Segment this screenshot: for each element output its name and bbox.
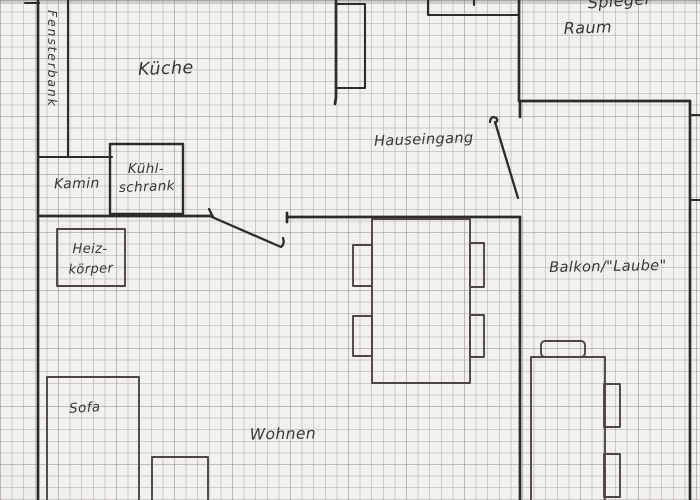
label-heizkoerper-line2: körper: [68, 261, 115, 278]
balcony-chair-right-2: [604, 454, 620, 497]
walls: [25, 0, 700, 500]
label-heizkoerper-line1: Heiz-: [73, 242, 108, 257]
label-hauseingang: Hauseingang: [374, 130, 474, 149]
label-kuehlschrank-line1: Kühl-: [128, 161, 164, 177]
label-top-right-room-partial: Spiegel-: [587, 0, 656, 12]
balcony-chair-top: [541, 341, 585, 357]
label-sofa: Sofa: [69, 399, 101, 417]
hall-door-leaf: [495, 122, 518, 198]
furniture: [47, 219, 620, 500]
chair-left-bottom: [353, 316, 372, 356]
hall-left-wall: [335, 0, 336, 104]
chair-left-top: [353, 245, 372, 286]
label-kueche: Küche: [138, 58, 194, 80]
balcony-chair-right-1: [604, 384, 620, 427]
hall-counter-outline: [337, 4, 365, 88]
label-raum: Raum: [563, 17, 612, 38]
floor-plan-drawing: Fensterbank Küche Kamin Kühl- schrank Ha…: [0, 0, 700, 500]
chair-right-top: [470, 243, 484, 287]
label-wohnen: Wohnen: [250, 424, 317, 443]
radiator-box: [57, 229, 125, 286]
chair-right-bottom: [470, 315, 484, 357]
label-balkon-laube: Balkon/"Laube": [549, 258, 667, 276]
floor-plan-canvas: Fensterbank Küche Kamin Kühl- schrank Ha…: [0, 0, 700, 500]
label-kamin: Kamin: [54, 176, 100, 193]
balcony-table: [531, 357, 605, 500]
label-kuehlschrank-line2: schrank: [119, 178, 176, 196]
side-table: [152, 457, 208, 500]
sofa-outline: [47, 377, 139, 500]
label-fensterbank: Fensterbank: [45, 10, 60, 108]
kitchen-door-leaf: [212, 217, 284, 247]
dining-table: [372, 219, 470, 383]
